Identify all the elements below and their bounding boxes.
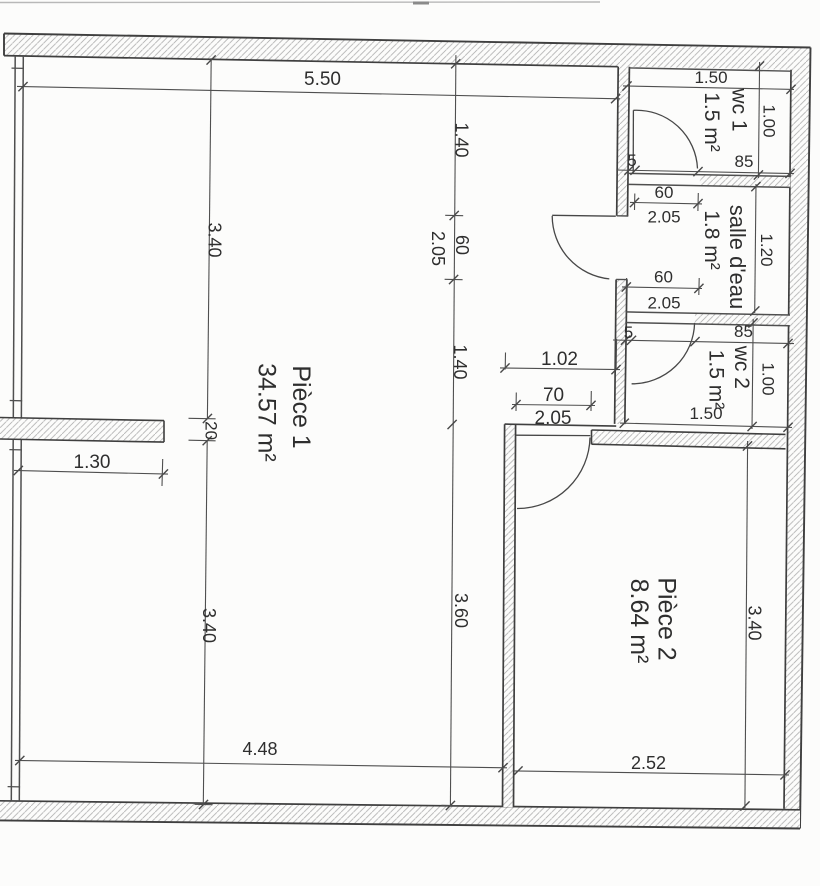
svg-text:5: 5 <box>624 323 633 342</box>
svg-text:2.05: 2.05 <box>647 208 680 227</box>
svg-text:2.05: 2.05 <box>647 294 680 313</box>
svg-text:5.50: 5.50 <box>304 69 341 90</box>
svg-text:60: 60 <box>655 183 674 202</box>
svg-text:5: 5 <box>627 151 636 170</box>
svg-text:2.05: 2.05 <box>535 408 572 429</box>
svg-text:1.5 m²: 1.5 m² <box>700 92 723 152</box>
svg-text:4.48: 4.48 <box>242 739 277 759</box>
svg-text:8.64 m²: 8.64 m² <box>625 579 653 664</box>
svg-text:85: 85 <box>735 152 754 171</box>
svg-text:wc 2: wc 2 <box>730 345 753 389</box>
svg-text:1.8 m²: 1.8 m² <box>700 210 723 270</box>
svg-text:70: 70 <box>543 385 564 406</box>
svg-text:34.57 m²: 34.57 m² <box>253 363 281 462</box>
svg-text:1.40: 1.40 <box>450 344 470 379</box>
svg-text:1.50: 1.50 <box>694 68 727 87</box>
svg-text:1.5 m²: 1.5 m² <box>704 350 727 410</box>
svg-text:3.60: 3.60 <box>451 593 471 628</box>
svg-text:60: 60 <box>452 235 472 255</box>
svg-text:2.52: 2.52 <box>631 753 666 773</box>
svg-text:1.00: 1.00 <box>759 362 778 395</box>
svg-text:3.40: 3.40 <box>205 222 225 257</box>
svg-text:Pièce 1: Pièce 1 <box>287 365 315 448</box>
svg-text:20: 20 <box>201 421 220 440</box>
svg-text:1.02: 1.02 <box>541 349 578 370</box>
svg-text:1.20: 1.20 <box>757 233 776 266</box>
svg-text:1.00: 1.00 <box>760 104 779 137</box>
svg-text:85: 85 <box>734 322 753 341</box>
svg-text:1.30: 1.30 <box>74 452 111 473</box>
svg-text:wc 1: wc 1 <box>727 87 750 131</box>
svg-text:Pièce 2: Pièce 2 <box>653 577 681 660</box>
svg-text:3.40: 3.40 <box>199 608 219 643</box>
svg-text:2.05: 2.05 <box>428 231 448 266</box>
svg-text:60: 60 <box>654 268 673 287</box>
svg-text:3.40: 3.40 <box>745 605 765 640</box>
svg-text:1.40: 1.40 <box>452 122 472 157</box>
svg-text:salle d'eau: salle d'eau <box>725 205 750 310</box>
